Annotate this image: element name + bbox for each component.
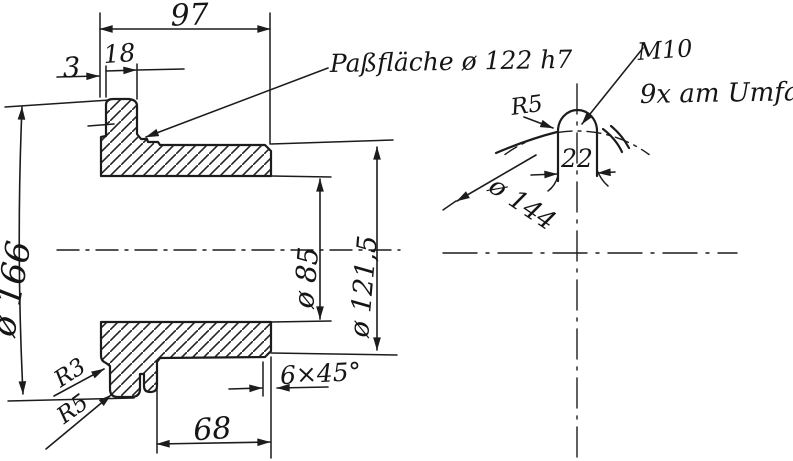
dia-166-label: ø 166: [0, 238, 40, 341]
r5-right-label: R5: [508, 91, 544, 121]
flange-arc-right-2: [611, 126, 629, 148]
lower-section-outline: [101, 322, 271, 397]
dim-68-label: 68: [192, 411, 233, 449]
r5-left-label: R5: [52, 389, 94, 429]
m10-label: M10: [635, 34, 693, 66]
dimension-face-offset: 3: [57, 51, 99, 85]
chamfer-label: 6×45°: [279, 357, 362, 390]
fit-surface-note: Paßfläche ø 122 h7: [146, 45, 573, 137]
dimension-barrel-diameter: ø 121,5: [344, 147, 384, 350]
flange-arc-left: [496, 132, 557, 153]
dimension-rim-width: 18: [103, 38, 184, 71]
extension-line: [271, 176, 331, 177]
dimension-bolt-circle: ø 144: [443, 155, 561, 237]
extension-line: [271, 140, 393, 144]
extension-line: [5, 100, 110, 107]
extension-line: [271, 321, 331, 322]
dimension-total-length: 97: [100, 0, 270, 34]
detail-view: R5 M10 9x am Umfang 22 ø 144: [443, 34, 793, 460]
lug-fillet-note: R5: [508, 91, 553, 128]
dia-144-label: ø 144: [482, 170, 561, 237]
technical-drawing-sheet: 97 3 18 ø 166 ø 85 ø 121,5: [0, 0, 793, 461]
dia-85-label: ø 85: [287, 246, 325, 311]
dim-97-label: 97: [170, 0, 210, 34]
dim-18-label: 18: [103, 38, 137, 69]
dim-22-label: 22: [560, 144, 593, 173]
dimension-chamfer: 6×45°: [229, 357, 362, 390]
drawing-canvas: 97 3 18 ø 166 ø 85 ø 121,5: [0, 0, 793, 461]
dimension-barrel-length: 68: [157, 411, 270, 449]
upper-section-outline: [101, 99, 271, 176]
lug-fade-left: [548, 176, 558, 191]
thread-count-label: 9x am Umfang: [640, 77, 793, 110]
dimension-lug-width: 22: [531, 144, 615, 175]
extension-line: [271, 353, 397, 355]
fit-surface-label: Paßfläche ø 122 h7: [329, 45, 573, 78]
dimension-bore-diameter: ø 85: [287, 179, 325, 319]
r3-label: R3: [49, 354, 91, 394]
dim-3-label: 3: [62, 51, 82, 85]
main-view: 97 3 18 ø 166 ø 85 ø 121,5: [0, 0, 573, 458]
thread-note: M10 9x am Umfang: [582, 34, 793, 124]
dimension-outer-diameter: ø 166: [0, 107, 40, 394]
